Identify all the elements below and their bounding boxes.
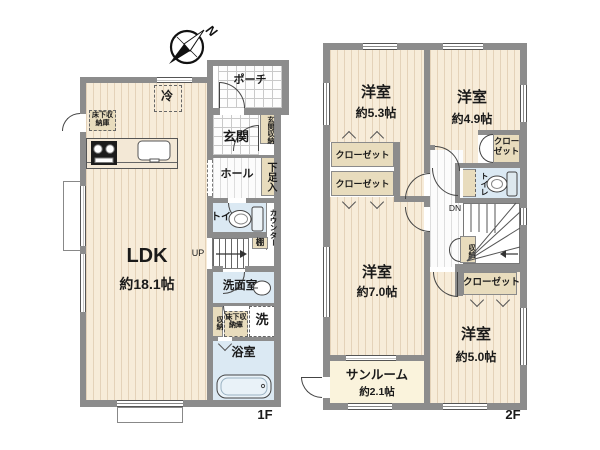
- f2-label-sunroom-size: 約2.1帖: [330, 386, 424, 398]
- f2-label-bedroom-5-0-size: 約5.0帖: [432, 351, 520, 365]
- f2-wall-top: [323, 43, 527, 50]
- f2-toilet-cabinet: [461, 169, 476, 197]
- f1-wall-right: [274, 115, 281, 407]
- f2-window-top-left: [363, 43, 397, 50]
- f1-floor-label: 1F: [250, 408, 280, 423]
- f1-label-toilet: トイレ: [211, 212, 238, 224]
- f2-label-closet-ne: クローゼット: [493, 137, 520, 157]
- f1-entrance-door-leaf: [258, 125, 259, 151]
- f2-label-bedroom-4-9-size: 約4.9帖: [432, 113, 512, 127]
- f1-bay-window: [63, 181, 81, 251]
- f2-wall-v1: [424, 50, 430, 146]
- f1-label-up: UP: [190, 248, 206, 258]
- f1-wall-porch-top: [212, 60, 289, 66]
- f1-wall-porch-right: [282, 60, 289, 115]
- f2-wall-v2d: [424, 268, 430, 403]
- f1-terrace-step: [117, 407, 183, 423]
- f1-label-bathroom: 浴室: [216, 346, 271, 360]
- f1-wall-hall-toilet-a: [212, 198, 228, 203]
- f1-wall-washroom-storage: [212, 303, 274, 306]
- f1-label-hall: ホール: [214, 168, 260, 181]
- f2-wall-stairs-bottom: [455, 264, 521, 272]
- f2-wall-v2a: [424, 146, 430, 173]
- f2-window-right-stairs: [520, 208, 527, 225]
- f2-label-bedroom-5-3-name: 洋室: [328, 84, 424, 101]
- f1-wall-hall-toilet-b: [246, 198, 274, 203]
- f1-kitchen-counter-edge: [87, 162, 177, 163]
- f1-wall-stairs-washroom-a: [212, 266, 223, 272]
- f1-label-refrigerator: 冷: [154, 90, 180, 104]
- f1-label-underfloor-washroom: 床下収納庫: [225, 314, 247, 330]
- f2-window-bottom-left: [348, 403, 392, 410]
- f2-label-storage: 収納: [462, 239, 475, 263]
- f2-window-top-right: [443, 43, 483, 50]
- f1-wall-stairs-washroom-b: [245, 266, 274, 272]
- f1-label-shoe-cabinet: 下足入: [262, 158, 275, 196]
- floorplan-canvas: LDK 約18.1帖 ポーチ 玄関 玄関収納 ホール 下足入 冷 床下収納庫 ト…: [0, 0, 600, 450]
- f1-wall-storage-bath-a: [212, 337, 218, 341]
- f2-window-bottom-right: [443, 403, 487, 410]
- f1-window-left-bay: [80, 186, 86, 246]
- f2-wall-closet-ne-top: [478, 130, 520, 135]
- f2-window-right-upper: [520, 85, 527, 122]
- f1-window-top: [157, 77, 192, 83]
- f2-wall-v2c: [424, 232, 430, 268]
- f2-bedroom-5-0-door-leaf: [457, 272, 458, 297]
- f2-label-sunroom-name: サンルーム: [330, 368, 424, 382]
- f2-label-bedroom-4-9-name: 洋室: [432, 89, 512, 106]
- f2-label-closet-upper-left: クローゼット: [331, 150, 394, 160]
- f1-wall-top-ldk: [80, 77, 213, 83]
- f2-window-right-lower: [520, 308, 527, 365]
- f2-label-bedroom-5-3-size: 約5.3帖: [328, 107, 424, 121]
- f1-label-ldk-name: LDK: [92, 245, 202, 268]
- f2-sunroom-door-arc: [301, 377, 322, 398]
- f1-label-porch: ポーチ: [220, 74, 280, 87]
- f1-label-entrance-storage: 玄関収納: [261, 116, 274, 144]
- f2-wall-toilet-top: [455, 163, 520, 168]
- f2-wall-toilet-bottom: [455, 198, 520, 203]
- f1-staircase: [212, 238, 249, 269]
- f1-doorway-kitchen: [80, 114, 86, 132]
- f1-label-entrance: 玄関: [214, 130, 258, 145]
- f1-wall-storage-bath-b: [232, 337, 274, 341]
- f2-label-bedroom-5-0-name: 洋室: [432, 326, 520, 343]
- f1-window-bottom: [117, 400, 183, 407]
- f2-doorway-sunroom: [323, 377, 330, 398]
- f2-label-toilet: トイレ: [477, 170, 488, 198]
- f2-label-dn: DN: [446, 204, 464, 214]
- f1-kitchen-counter: [86, 138, 178, 169]
- compass-north-label: N: [203, 22, 220, 40]
- f2-label-bedroom-7-0-name: 洋室: [330, 264, 424, 281]
- f1-window-left-lower: [80, 254, 86, 312]
- f2-label-closet-se: クローゼット: [463, 278, 517, 289]
- f1-label-washroom: 洗面室: [214, 280, 266, 293]
- f1-wall-porch-bottom-a: [212, 108, 220, 115]
- f2-sunroom-door-leaf: [301, 377, 322, 378]
- f1-label-storage: 収納: [212, 309, 223, 337]
- f1-label-washer: 洗: [250, 313, 274, 328]
- f1-wall-porch-bottom-b: [244, 108, 289, 115]
- f2-wall-closet-right: [394, 142, 400, 196]
- f1-pocket-door: [207, 160, 213, 196]
- f2-label-bedroom-7-0-size: 約7.0帖: [330, 286, 424, 300]
- f1-label-underfloor-kitchen: 床下収納庫: [90, 112, 115, 128]
- f2-label-closet-lower-left: クローゼット: [331, 179, 394, 189]
- f2-window-left-lower: [323, 247, 330, 317]
- compass-icon: N: [169, 22, 220, 64]
- f1-wall-divider-a: [207, 60, 213, 160]
- f2-window-sunroom-inner: [346, 355, 396, 361]
- f2-floor-label: 2F: [498, 408, 528, 423]
- f1-label-ldk-size: 約18.1帖: [92, 276, 202, 292]
- f1-kitchen-door-arc: [62, 113, 80, 131]
- f1-label-shelf: 棚: [252, 238, 268, 248]
